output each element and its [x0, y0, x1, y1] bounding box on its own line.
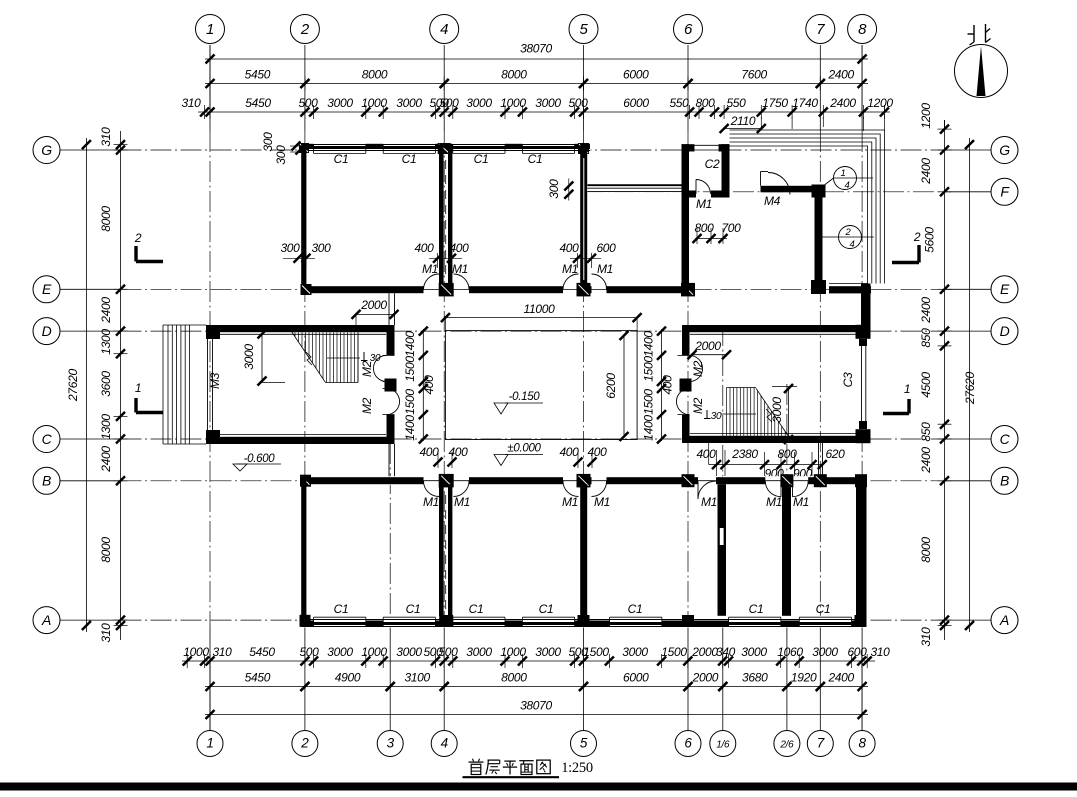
- svg-text:7600: 7600: [741, 68, 767, 82]
- svg-text:3000: 3000: [242, 344, 256, 370]
- svg-text:27620: 27620: [66, 368, 80, 401]
- svg-text:C3: C3: [841, 372, 855, 387]
- svg-text:2400: 2400: [919, 297, 933, 324]
- svg-text:2400: 2400: [827, 68, 854, 82]
- svg-text:600: 600: [847, 645, 867, 659]
- svg-text:1740: 1740: [792, 96, 818, 110]
- svg-text:1: 1: [135, 381, 141, 395]
- svg-text:C1: C1: [528, 152, 543, 166]
- svg-text:4: 4: [845, 180, 850, 191]
- svg-text:700: 700: [721, 221, 741, 235]
- svg-text:2000: 2000: [694, 339, 721, 353]
- svg-text:850: 850: [919, 328, 933, 348]
- svg-text:3000: 3000: [812, 645, 838, 659]
- svg-text:4: 4: [441, 736, 448, 751]
- svg-text:5: 5: [579, 21, 588, 38]
- svg-text:M2: M2: [360, 397, 374, 414]
- svg-text:M1: M1: [423, 495, 439, 509]
- svg-text:8000: 8000: [501, 68, 527, 82]
- svg-text:2400: 2400: [827, 671, 854, 685]
- svg-text:2400: 2400: [919, 158, 933, 185]
- svg-text:E: E: [1000, 281, 1010, 297]
- svg-text:7: 7: [816, 21, 825, 38]
- svg-text:2400: 2400: [99, 297, 113, 324]
- svg-text:1/6: 1/6: [716, 740, 730, 751]
- svg-text:1920: 1920: [791, 671, 817, 685]
- svg-text:5450: 5450: [245, 68, 271, 82]
- svg-text:300: 300: [261, 132, 275, 152]
- svg-text:500: 500: [438, 645, 458, 659]
- svg-text:C1: C1: [334, 602, 349, 616]
- svg-text:6: 6: [684, 736, 692, 751]
- svg-text:2000: 2000: [360, 298, 387, 312]
- svg-text:1000: 1000: [500, 645, 526, 659]
- svg-text:1400: 1400: [642, 331, 656, 357]
- svg-text:M1: M1: [562, 262, 578, 276]
- svg-text:400: 400: [419, 445, 439, 459]
- svg-text:1500: 1500: [661, 645, 687, 659]
- svg-text:3000: 3000: [622, 645, 648, 659]
- svg-text:M1: M1: [597, 262, 613, 276]
- svg-text:7: 7: [817, 736, 825, 751]
- svg-text:C: C: [42, 431, 53, 447]
- svg-text:8: 8: [858, 736, 866, 751]
- svg-text:2380: 2380: [731, 447, 758, 461]
- svg-text:2: 2: [134, 231, 142, 245]
- svg-text:3000: 3000: [770, 397, 784, 423]
- svg-text:3000: 3000: [327, 96, 353, 110]
- svg-text:-0.600: -0.600: [244, 453, 276, 465]
- svg-text:1: 1: [904, 382, 910, 396]
- svg-text:2: 2: [300, 21, 310, 38]
- svg-text:1: 1: [841, 168, 846, 179]
- svg-text:M1: M1: [701, 495, 717, 509]
- svg-text:4900: 4900: [335, 671, 361, 685]
- svg-text:2: 2: [913, 230, 921, 244]
- svg-text:38070: 38070: [520, 42, 552, 56]
- svg-text:M1: M1: [696, 197, 712, 211]
- svg-text:1400: 1400: [642, 415, 656, 441]
- svg-text:11000: 11000: [524, 302, 556, 316]
- svg-text:30: 30: [711, 411, 722, 422]
- svg-text:1400: 1400: [403, 415, 417, 441]
- svg-text:5600: 5600: [923, 227, 937, 253]
- svg-text:500: 500: [568, 96, 588, 110]
- svg-text:1300: 1300: [99, 329, 113, 355]
- svg-text:-0.150: -0.150: [509, 391, 541, 403]
- svg-text:M2: M2: [691, 360, 705, 377]
- svg-text:310: 310: [212, 645, 232, 659]
- svg-text:2110: 2110: [730, 114, 756, 128]
- svg-text:C1: C1: [406, 602, 421, 616]
- svg-text:1000: 1000: [361, 96, 387, 110]
- svg-text:400: 400: [696, 447, 716, 461]
- svg-text:C1: C1: [628, 602, 643, 616]
- svg-text:310: 310: [181, 96, 201, 110]
- svg-text:1750: 1750: [762, 96, 788, 110]
- svg-text:2000: 2000: [691, 645, 718, 659]
- svg-text:1200: 1200: [867, 96, 893, 110]
- svg-text:310: 310: [99, 623, 113, 643]
- svg-text:A: A: [41, 612, 51, 628]
- svg-text:M1: M1: [793, 495, 809, 509]
- svg-text:2/6: 2/6: [779, 740, 794, 751]
- svg-text:38070: 38070: [520, 699, 552, 713]
- svg-text:M2: M2: [691, 397, 705, 414]
- svg-text:1500: 1500: [583, 645, 609, 659]
- svg-text:1500: 1500: [642, 356, 656, 382]
- svg-text:M1: M1: [454, 495, 470, 509]
- svg-text:400: 400: [414, 241, 434, 255]
- svg-text:M3: M3: [208, 372, 222, 389]
- svg-text:30: 30: [370, 353, 381, 364]
- svg-text:3000: 3000: [741, 645, 767, 659]
- svg-text:310: 310: [870, 645, 890, 659]
- svg-text:4: 4: [850, 239, 855, 250]
- svg-text:300: 300: [311, 241, 331, 255]
- svg-text:27620: 27620: [963, 371, 977, 404]
- svg-text:620: 620: [825, 447, 845, 461]
- svg-text:C1: C1: [474, 152, 489, 166]
- svg-text:6000: 6000: [623, 68, 649, 82]
- svg-text:C1: C1: [816, 602, 831, 616]
- svg-text:300: 300: [274, 145, 288, 165]
- svg-text:6000: 6000: [623, 96, 649, 110]
- svg-text:1: 1: [206, 21, 214, 38]
- svg-text:800: 800: [695, 96, 715, 110]
- svg-text:1000: 1000: [183, 645, 209, 659]
- svg-text:B: B: [1000, 473, 1009, 489]
- svg-text:E: E: [42, 281, 52, 297]
- svg-text:1200: 1200: [919, 103, 933, 129]
- svg-text:310: 310: [919, 627, 933, 647]
- svg-text:400: 400: [661, 375, 675, 395]
- svg-text:C2: C2: [705, 157, 720, 171]
- svg-text:400: 400: [449, 241, 469, 255]
- svg-text:M4: M4: [764, 194, 781, 208]
- svg-text:400: 400: [559, 445, 579, 459]
- svg-text:C1: C1: [334, 152, 349, 166]
- svg-text:3000: 3000: [466, 645, 492, 659]
- svg-text:400: 400: [448, 445, 468, 459]
- svg-text:B: B: [42, 473, 51, 489]
- svg-text:300: 300: [547, 179, 561, 199]
- svg-text:G: G: [41, 142, 52, 158]
- svg-text:C: C: [1000, 431, 1011, 447]
- svg-text:1060: 1060: [777, 645, 803, 659]
- svg-text:500: 500: [439, 96, 459, 110]
- svg-text:5450: 5450: [245, 671, 271, 685]
- svg-text:400: 400: [422, 375, 436, 395]
- svg-text:8000: 8000: [501, 671, 527, 685]
- svg-text:2400: 2400: [919, 447, 933, 474]
- svg-text:8: 8: [858, 21, 867, 38]
- svg-text:2: 2: [845, 227, 852, 238]
- svg-text:3: 3: [387, 736, 395, 751]
- svg-text:C1: C1: [402, 152, 417, 166]
- svg-text:C1: C1: [749, 602, 764, 616]
- svg-text:1400: 1400: [403, 331, 417, 357]
- svg-text:1500: 1500: [403, 389, 417, 415]
- svg-text:5450: 5450: [249, 645, 275, 659]
- svg-text:1500: 1500: [642, 389, 656, 415]
- svg-text:4500: 4500: [919, 372, 933, 398]
- svg-text:310: 310: [99, 127, 113, 147]
- svg-text:8000: 8000: [362, 68, 388, 82]
- svg-text:3000: 3000: [466, 96, 492, 110]
- svg-text:D: D: [42, 323, 52, 339]
- svg-text:1500: 1500: [403, 356, 417, 382]
- svg-text:A: A: [999, 612, 1009, 628]
- svg-text:G: G: [999, 142, 1010, 158]
- svg-text:3600: 3600: [99, 371, 113, 397]
- svg-text:3000: 3000: [535, 645, 561, 659]
- svg-text:5: 5: [580, 736, 588, 751]
- svg-text:1: 1: [206, 736, 213, 751]
- svg-text:600: 600: [596, 241, 616, 255]
- svg-text:8000: 8000: [99, 537, 113, 563]
- svg-text:8000: 8000: [99, 206, 113, 232]
- svg-text:M1: M1: [594, 495, 610, 509]
- svg-text:3100: 3100: [404, 671, 430, 685]
- svg-text:M1: M1: [452, 262, 468, 276]
- svg-text:2000: 2000: [692, 671, 719, 685]
- svg-text:1000: 1000: [361, 645, 387, 659]
- svg-text:3680: 3680: [742, 671, 768, 685]
- svg-text:5450: 5450: [245, 96, 271, 110]
- svg-text:M1: M1: [766, 495, 782, 509]
- svg-text:1300: 1300: [99, 414, 113, 440]
- svg-text:2400: 2400: [829, 96, 856, 110]
- svg-text:M1: M1: [562, 495, 578, 509]
- svg-text:C1: C1: [539, 602, 554, 616]
- svg-text:850: 850: [919, 422, 933, 442]
- svg-text:6000: 6000: [623, 671, 649, 685]
- svg-text:400: 400: [559, 241, 579, 255]
- svg-text:500: 500: [299, 645, 319, 659]
- svg-text:300: 300: [280, 241, 300, 255]
- svg-text:3000: 3000: [396, 96, 422, 110]
- svg-text:M1: M1: [422, 262, 438, 276]
- svg-text:8000: 8000: [919, 537, 933, 563]
- svg-text:2400: 2400: [99, 446, 113, 473]
- svg-text:3000: 3000: [327, 645, 353, 659]
- svg-text:400: 400: [587, 445, 607, 459]
- svg-text:6: 6: [684, 21, 693, 38]
- svg-text:550: 550: [669, 96, 689, 110]
- svg-text:2: 2: [300, 736, 309, 751]
- svg-text:550: 550: [726, 96, 746, 110]
- svg-text:3000: 3000: [535, 96, 561, 110]
- svg-text:D: D: [1000, 323, 1010, 339]
- svg-text:6200: 6200: [604, 373, 618, 399]
- svg-text:±0.000: ±0.000: [507, 443, 541, 455]
- svg-text:3000: 3000: [396, 645, 422, 659]
- svg-text:1:250: 1:250: [561, 760, 593, 776]
- svg-text:C1: C1: [469, 602, 484, 616]
- svg-text:1000: 1000: [500, 96, 526, 110]
- svg-text:500: 500: [298, 96, 318, 110]
- svg-text:4: 4: [440, 21, 448, 38]
- svg-text:340: 340: [716, 645, 736, 659]
